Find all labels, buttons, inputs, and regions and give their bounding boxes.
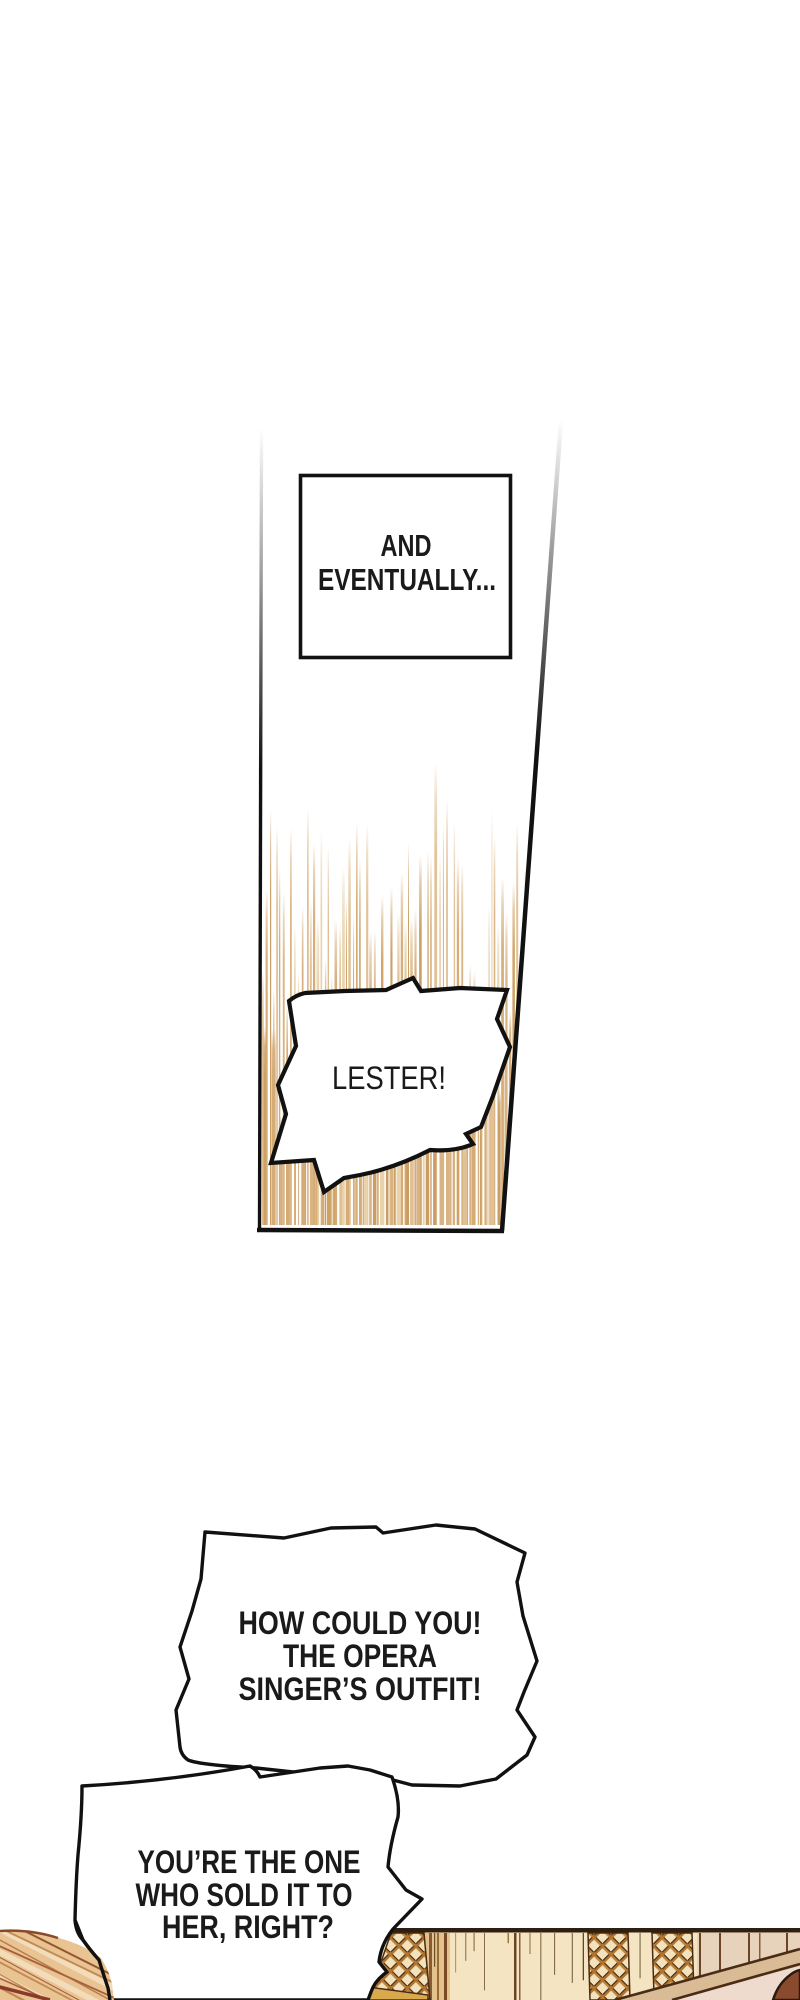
svg-text:EVENTUALLY...: EVENTUALLY...: [318, 562, 496, 597]
svg-text:SINGER’S OUTFIT!: SINGER’S OUTFIT!: [239, 1671, 482, 1707]
svg-text:AND: AND: [381, 528, 432, 563]
svg-text:HER, RIGHT?: HER, RIGHT?: [162, 1909, 334, 1945]
svg-text:THE OPERA: THE OPERA: [283, 1638, 437, 1674]
svg-text:HOW COULD YOU!: HOW COULD YOU!: [239, 1605, 482, 1641]
svg-text:YOU’RE THE ONE: YOU’RE THE ONE: [138, 1844, 361, 1880]
svg-text:LESTER!: LESTER!: [332, 1060, 446, 1096]
svg-text:WHO SOLD IT TO: WHO SOLD IT TO: [136, 1877, 353, 1913]
